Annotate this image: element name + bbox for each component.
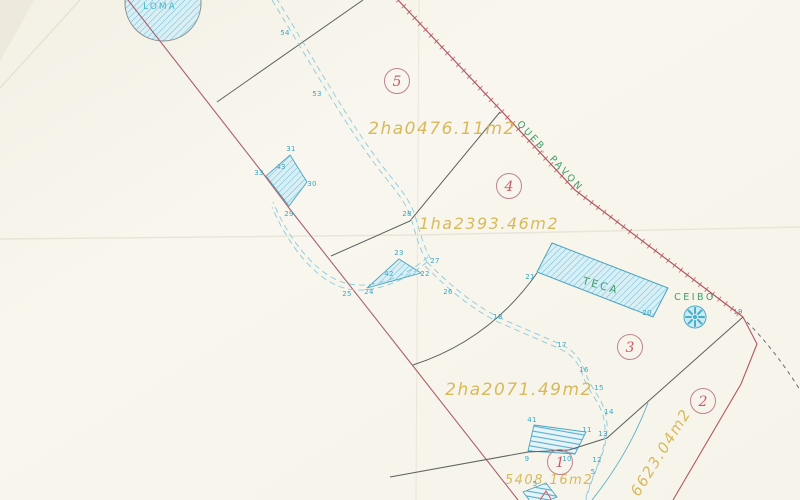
survey-point-label: 15 bbox=[594, 384, 604, 392]
survey-point-label: 26 bbox=[443, 288, 453, 296]
survey-point-label: 21 bbox=[525, 273, 535, 281]
parcel-5-number: 5 bbox=[393, 74, 402, 90]
parcel-1-area: 5408.16m2 bbox=[505, 473, 593, 488]
parcel-4-area: 1ha2393.46m2 bbox=[419, 214, 559, 233]
parcel-2-number: 2 bbox=[698, 394, 708, 410]
survey-point-label: 5 bbox=[591, 468, 596, 476]
survey-point-label: 41 bbox=[527, 416, 537, 424]
survey-point-label: 29 bbox=[284, 210, 294, 218]
survey-point-label: 5 bbox=[533, 480, 538, 488]
survey-point-label: 16 bbox=[579, 366, 589, 374]
parcel-4-number: 4 bbox=[504, 179, 514, 195]
survey-point-label: 9 bbox=[525, 455, 530, 463]
parcel-3-number: 3 bbox=[626, 340, 635, 356]
survey-point-label: 23 bbox=[394, 249, 404, 257]
survey-point-label: 14 bbox=[604, 408, 614, 416]
survey-point-label: 22 bbox=[420, 270, 430, 278]
survey-point-label: 10 bbox=[562, 455, 572, 463]
survey-point-label: 53 bbox=[312, 90, 322, 98]
survey-point-label: 27 bbox=[430, 257, 440, 265]
survey-point-label: 17 bbox=[557, 341, 567, 349]
survey-map: LOMA bbox=[0, 0, 800, 500]
survey-point-label: 20 bbox=[642, 309, 652, 317]
parcel-3-area: 2ha2071.49m2 bbox=[445, 380, 593, 400]
ceibo-label: CEIBO bbox=[674, 292, 716, 303]
survey-point-label: 31 bbox=[286, 145, 296, 153]
survey-point-label: 54 bbox=[280, 29, 290, 37]
survey-point-label: 24 bbox=[364, 288, 374, 296]
survey-point-label: 12 bbox=[592, 456, 602, 464]
survey-point-label: 18 bbox=[493, 313, 503, 321]
survey-point-label: 13 bbox=[598, 430, 608, 438]
survey-map-canvas: LOMA bbox=[0, 0, 800, 500]
survey-point-label: 11 bbox=[582, 426, 592, 434]
survey-point-label: 33 bbox=[254, 169, 264, 177]
survey-point-label: 25 bbox=[342, 290, 352, 298]
survey-point-label: 42 bbox=[384, 270, 394, 278]
loma-label: LOMA bbox=[143, 2, 177, 12]
ceibo-tree-icon bbox=[684, 306, 706, 328]
survey-point-label: 19 bbox=[733, 308, 743, 316]
survey-point-label: 30 bbox=[307, 180, 317, 188]
survey-point-label: 43 bbox=[276, 163, 286, 171]
parcel-5-area: 2ha0476.11m2 bbox=[368, 119, 516, 139]
survey-point-label: 28 bbox=[402, 210, 412, 218]
